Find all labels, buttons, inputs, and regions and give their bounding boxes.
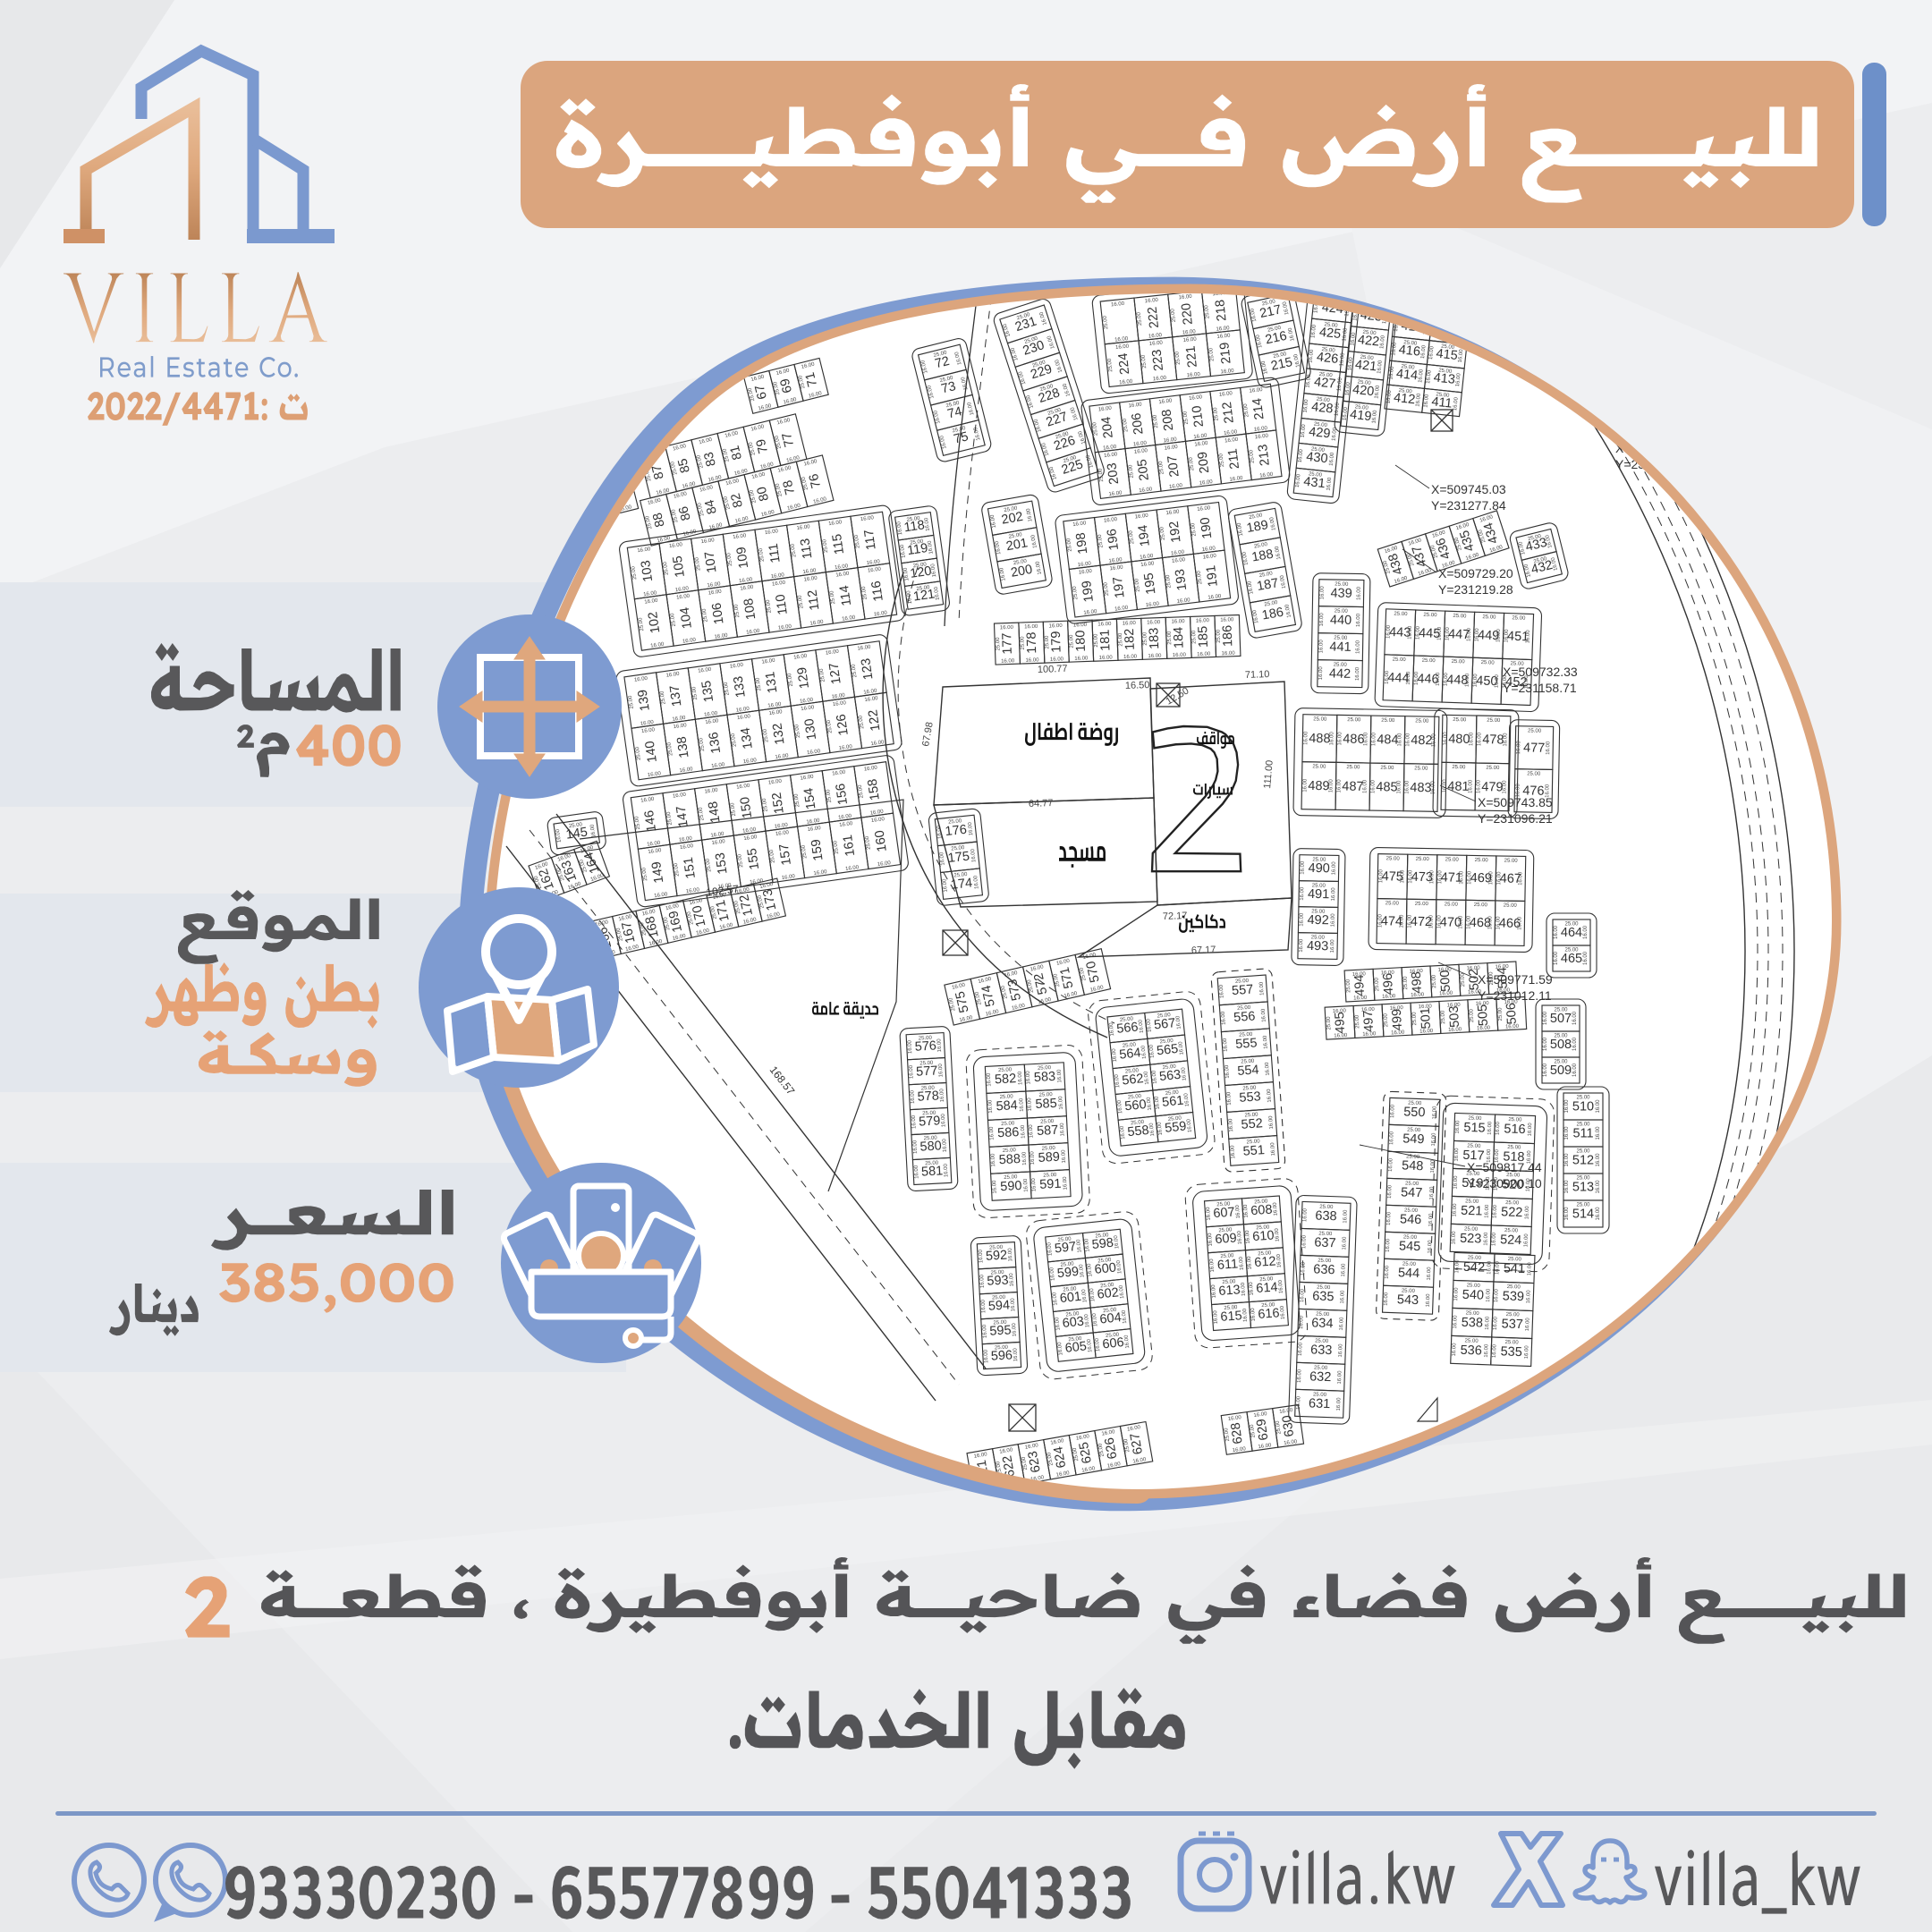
svg-text:16.00: 16.00 xyxy=(1021,1151,1028,1165)
svg-text:540: 540 xyxy=(1462,1288,1485,1303)
svg-text:16.00: 16.00 xyxy=(1370,779,1376,793)
svg-text:16.00: 16.00 xyxy=(1299,938,1304,953)
svg-text:550: 550 xyxy=(1403,1105,1426,1120)
svg-text:25.00: 25.00 xyxy=(1431,974,1437,988)
svg-text:483: 483 xyxy=(1410,781,1431,795)
svg-text:631: 631 xyxy=(1309,1396,1331,1411)
svg-text:25.00: 25.00 xyxy=(1311,909,1326,914)
svg-text:25.00: 25.00 xyxy=(1468,1255,1482,1261)
svg-text:16.00: 16.00 xyxy=(1206,1207,1212,1221)
svg-text:156: 156 xyxy=(834,783,851,806)
svg-text:123: 123 xyxy=(859,657,876,681)
svg-text:16.00: 16.00 xyxy=(1448,1027,1462,1033)
svg-text:25.00: 25.00 xyxy=(990,1270,1004,1276)
svg-text:16.00: 16.00 xyxy=(1371,732,1377,746)
svg-text:16.00: 16.00 xyxy=(1444,672,1450,686)
svg-text:135: 135 xyxy=(699,680,716,703)
svg-text:199: 199 xyxy=(1080,580,1097,603)
svg-text:16.00: 16.00 xyxy=(1057,1069,1063,1083)
svg-text:16.00: 16.00 xyxy=(1318,666,1324,681)
svg-text:16.00: 16.00 xyxy=(1300,1288,1306,1302)
svg-text:509: 509 xyxy=(1550,1063,1572,1078)
svg-text:25.00: 25.00 xyxy=(1468,1115,1482,1122)
svg-text:545: 545 xyxy=(1399,1239,1421,1254)
svg-text:16.00: 16.00 xyxy=(1355,640,1360,654)
svg-text:X=509729.20: X=509729.20 xyxy=(1438,566,1513,580)
svg-text:16.00: 16.00 xyxy=(1493,1316,1499,1330)
svg-text:16.00: 16.00 xyxy=(1518,871,1523,885)
svg-text:16.00: 16.00 xyxy=(1328,779,1334,793)
svg-text:16.00: 16.00 xyxy=(1387,1184,1394,1199)
svg-text:25.00: 25.00 xyxy=(993,1320,1007,1326)
svg-text:583: 583 xyxy=(1034,1070,1056,1085)
svg-text:25.00: 25.00 xyxy=(1191,630,1198,644)
svg-text:25.00: 25.00 xyxy=(1402,1288,1416,1294)
svg-text:549: 549 xyxy=(1402,1131,1425,1147)
svg-text:16.00: 16.00 xyxy=(992,1180,998,1194)
svg-text:16.00: 16.00 xyxy=(1525,630,1531,644)
svg-text:479: 479 xyxy=(1481,780,1503,794)
svg-text:25.00: 25.00 xyxy=(1474,902,1488,908)
svg-text:513: 513 xyxy=(1572,1181,1594,1195)
svg-text:16.00: 16.00 xyxy=(1303,731,1309,745)
svg-text:25.00: 25.00 xyxy=(1312,857,1326,862)
svg-text:591: 591 xyxy=(1039,1177,1062,1192)
svg-text:16.00: 16.00 xyxy=(1495,1260,1501,1275)
svg-text:16.00: 16.00 xyxy=(1469,732,1474,746)
svg-text:16.00: 16.00 xyxy=(1301,860,1306,875)
svg-text:25.00: 25.00 xyxy=(1042,1146,1056,1152)
svg-text:16.00: 16.00 xyxy=(1299,1315,1305,1329)
svg-text:551: 551 xyxy=(1242,1143,1265,1159)
svg-text:16.00: 16.00 xyxy=(1278,1279,1284,1293)
svg-text:16.00: 16.00 xyxy=(1477,732,1482,746)
svg-text:16.00: 16.00 xyxy=(1381,970,1395,977)
svg-text:16.00: 16.00 xyxy=(1196,618,1210,624)
svg-text:16.00: 16.00 xyxy=(1332,861,1337,876)
svg-text:16.00: 16.00 xyxy=(1408,869,1413,884)
svg-text:16.00: 16.00 xyxy=(1564,1099,1570,1114)
svg-text:132: 132 xyxy=(770,722,787,745)
svg-text:25.00: 25.00 xyxy=(1335,609,1349,614)
svg-text:25.00: 25.00 xyxy=(1216,629,1222,643)
svg-text:16.00: 16.00 xyxy=(1223,1038,1229,1052)
svg-text:16.00: 16.00 xyxy=(1525,1206,1531,1220)
svg-text:16.00: 16.00 xyxy=(1452,1343,1458,1357)
svg-text:464: 464 xyxy=(1561,926,1582,940)
svg-text:106: 106 xyxy=(709,602,726,625)
svg-text:25.00: 25.00 xyxy=(1220,1253,1234,1259)
svg-text:184: 184 xyxy=(1172,627,1187,649)
svg-text:633: 633 xyxy=(1310,1343,1333,1358)
svg-text:107: 107 xyxy=(702,550,719,573)
svg-text:16.00: 16.00 xyxy=(1583,925,1589,939)
svg-text:16.00: 16.00 xyxy=(1564,1207,1570,1221)
svg-text:16.00: 16.00 xyxy=(1336,779,1342,793)
svg-text:16.00: 16.00 xyxy=(1024,624,1038,631)
svg-text:547: 547 xyxy=(1401,1185,1423,1200)
svg-text:152: 152 xyxy=(770,792,787,815)
svg-text:25.00: 25.00 xyxy=(1242,1086,1257,1092)
svg-text:16.00: 16.00 xyxy=(1012,1322,1018,1336)
svg-text:16.00: 16.00 xyxy=(1415,625,1421,640)
svg-text:X=509745.03: X=509745.03 xyxy=(1431,482,1506,496)
svg-text:16.00: 16.00 xyxy=(1467,870,1472,885)
svg-text:210: 210 xyxy=(1190,404,1207,428)
svg-text:127: 127 xyxy=(827,662,844,685)
svg-text:16.00: 16.00 xyxy=(1483,1232,1489,1246)
svg-text:16.00: 16.00 xyxy=(1404,780,1410,794)
svg-text:16.00: 16.00 xyxy=(910,1089,916,1104)
svg-text:25.00: 25.00 xyxy=(1020,636,1026,650)
svg-text:25.00: 25.00 xyxy=(1311,935,1326,940)
svg-text:16.00: 16.00 xyxy=(982,1324,988,1338)
svg-text:16.00: 16.00 xyxy=(1407,914,1412,928)
svg-text:25.00: 25.00 xyxy=(1504,1340,1519,1346)
svg-text:537: 537 xyxy=(1501,1317,1523,1332)
svg-text:16.00: 16.00 xyxy=(1453,1287,1460,1301)
svg-text:557: 557 xyxy=(1232,983,1254,999)
svg-text:16.00: 16.00 xyxy=(1564,1126,1570,1140)
svg-text:219: 219 xyxy=(1217,342,1233,365)
svg-text:16.00: 16.00 xyxy=(1173,653,1187,659)
svg-text:25.00: 25.00 xyxy=(1576,1176,1590,1182)
svg-text:64.77: 64.77 xyxy=(1029,798,1054,809)
svg-text:16.00: 16.00 xyxy=(1280,1305,1286,1319)
svg-text:25.00: 25.00 xyxy=(995,1345,1009,1352)
svg-text:16.00: 16.00 xyxy=(1319,613,1325,627)
svg-text:543: 543 xyxy=(1397,1292,1419,1308)
svg-text:16.00: 16.00 xyxy=(1336,1397,1343,1411)
svg-text:16.00: 16.00 xyxy=(1487,1121,1494,1135)
svg-text:138: 138 xyxy=(674,735,691,758)
svg-text:25.00: 25.00 xyxy=(1528,728,1542,733)
svg-text:25.00: 25.00 xyxy=(1375,977,1381,991)
svg-text:16.00: 16.00 xyxy=(1249,1282,1255,1296)
svg-text:16.00: 16.00 xyxy=(1301,1261,1307,1275)
svg-text:25.00: 25.00 xyxy=(1069,634,1075,648)
svg-text:16.00: 16.00 xyxy=(1564,1153,1570,1167)
svg-text:25.00: 25.00 xyxy=(1486,766,1500,771)
svg-text:16.00: 16.00 xyxy=(1429,869,1435,884)
svg-text:16.00: 16.00 xyxy=(1400,869,1405,884)
svg-text:113: 113 xyxy=(798,538,815,560)
svg-text:16.00: 16.00 xyxy=(1226,1091,1233,1106)
svg-text:157: 157 xyxy=(777,843,794,866)
svg-text:16.00: 16.00 xyxy=(1496,916,1501,930)
svg-text:25.00: 25.00 xyxy=(1244,1112,1258,1118)
svg-text:16.00: 16.00 xyxy=(1495,674,1501,688)
svg-text:25.00: 25.00 xyxy=(1469,1008,1475,1022)
svg-text:16.00: 16.00 xyxy=(1410,969,1424,975)
svg-text:25.00: 25.00 xyxy=(1403,1234,1418,1241)
svg-text:488: 488 xyxy=(1309,732,1330,746)
svg-text:25.00: 25.00 xyxy=(1554,1008,1568,1013)
svg-text:16.00: 16.00 xyxy=(1405,733,1411,747)
svg-text:16.00: 16.00 xyxy=(1496,1121,1502,1135)
svg-text:25.00: 25.00 xyxy=(1317,1285,1331,1292)
svg-text:16.00: 16.00 xyxy=(1399,914,1404,928)
svg-text:16.00: 16.00 xyxy=(911,1114,918,1129)
svg-text:536: 536 xyxy=(1460,1343,1482,1359)
svg-text:114: 114 xyxy=(837,584,854,606)
svg-text:16.00: 16.00 xyxy=(1224,1064,1231,1079)
svg-text:25.00: 25.00 xyxy=(921,1086,936,1092)
svg-text:16.00: 16.00 xyxy=(1300,886,1305,901)
svg-text:539: 539 xyxy=(1502,1289,1524,1304)
svg-text:16.00: 16.00 xyxy=(1454,1148,1461,1162)
svg-text:16.00: 16.00 xyxy=(1273,1201,1279,1216)
svg-text:16.00: 16.00 xyxy=(1447,1003,1462,1009)
svg-text:104: 104 xyxy=(678,606,695,630)
svg-text:16.00: 16.00 xyxy=(1465,673,1471,687)
svg-text:16.00: 16.00 xyxy=(1343,1209,1349,1224)
svg-text:25.00: 25.00 xyxy=(1393,657,1407,664)
svg-text:25.00: 25.00 xyxy=(1482,614,1496,621)
svg-text:212: 212 xyxy=(1220,401,1237,424)
svg-text:25.00: 25.00 xyxy=(1504,903,1518,909)
svg-text:193: 193 xyxy=(1173,568,1190,591)
svg-text:25.00: 25.00 xyxy=(1334,663,1348,668)
svg-text:636: 636 xyxy=(1313,1262,1335,1277)
svg-text:117: 117 xyxy=(862,529,879,551)
svg-text:16.00: 16.00 xyxy=(1583,951,1589,965)
svg-text:X=509771.59: X=509771.59 xyxy=(1478,972,1553,987)
svg-text:16.00: 16.00 xyxy=(1378,869,1384,883)
svg-text:542: 542 xyxy=(1463,1260,1486,1275)
svg-text:16.00: 16.00 xyxy=(1339,1317,1345,1331)
svg-text:25.00: 25.00 xyxy=(1313,716,1327,722)
svg-text:16.00: 16.00 xyxy=(1270,1142,1276,1157)
svg-text:25.00: 25.00 xyxy=(924,1136,938,1142)
svg-text:16.00: 16.00 xyxy=(1263,1035,1269,1049)
svg-text:16.00: 16.00 xyxy=(1432,1106,1438,1120)
svg-text:25.00: 25.00 xyxy=(1422,658,1436,665)
svg-text:211: 211 xyxy=(1225,447,1242,470)
svg-text:523: 523 xyxy=(1460,1232,1482,1247)
svg-text:25.00: 25.00 xyxy=(1416,857,1430,862)
svg-text:16.00: 16.00 xyxy=(1148,654,1162,660)
svg-text:16.00: 16.00 xyxy=(1334,1033,1348,1039)
svg-text:16.00: 16.00 xyxy=(1030,1150,1036,1165)
svg-text:25.00: 25.00 xyxy=(919,1061,934,1067)
svg-text:16.00: 16.00 xyxy=(1428,1213,1435,1227)
svg-text:16.00: 16.00 xyxy=(1025,657,1039,664)
svg-text:16.00: 16.00 xyxy=(1554,951,1559,965)
svg-text:16.00: 16.00 xyxy=(1239,1256,1245,1270)
svg-text:16.00: 16.00 xyxy=(1414,671,1420,685)
svg-text:590: 590 xyxy=(1000,1179,1022,1194)
svg-text:16.00: 16.00 xyxy=(1000,625,1014,631)
svg-text:16.00: 16.00 xyxy=(1213,1309,1219,1324)
svg-text:480: 480 xyxy=(1448,732,1470,746)
svg-text:16.00: 16.00 xyxy=(1356,613,1361,627)
svg-text:16.00: 16.00 xyxy=(1027,1097,1033,1112)
svg-text:16.00: 16.00 xyxy=(1337,732,1343,746)
svg-text:Y=231012.11: Y=231012.11 xyxy=(1478,988,1552,1003)
svg-text:635: 635 xyxy=(1312,1289,1335,1304)
svg-text:16.00: 16.00 xyxy=(1517,916,1522,930)
svg-text:25.00: 25.00 xyxy=(1402,1261,1417,1267)
svg-text:544: 544 xyxy=(1398,1266,1420,1281)
svg-text:159: 159 xyxy=(809,838,826,861)
svg-text:16.00: 16.00 xyxy=(1426,1293,1432,1308)
svg-text:16.00: 16.00 xyxy=(1074,656,1089,662)
svg-text:25.00: 25.00 xyxy=(1554,1060,1568,1065)
svg-text:25.00: 25.00 xyxy=(1313,1392,1327,1398)
svg-text:16.00: 16.00 xyxy=(1352,971,1367,978)
svg-text:16.00: 16.00 xyxy=(1221,1011,1227,1025)
svg-text:16.00: 16.00 xyxy=(1049,623,1063,630)
svg-text:25.00: 25.00 xyxy=(996,637,1002,651)
svg-text:25.00: 25.00 xyxy=(989,1245,1004,1251)
svg-text:514: 514 xyxy=(1572,1207,1594,1222)
svg-text:16.00: 16.00 xyxy=(1436,626,1443,640)
svg-text:16.00: 16.00 xyxy=(1330,939,1335,953)
svg-text:16.00: 16.00 xyxy=(1247,1256,1253,1270)
svg-text:16.00: 16.00 xyxy=(1341,1263,1347,1277)
svg-text:16.00: 16.00 xyxy=(1516,741,1521,755)
svg-text:16.00: 16.00 xyxy=(1267,1089,1273,1103)
svg-text:177: 177 xyxy=(1000,632,1015,655)
svg-text:25.00: 25.00 xyxy=(1381,718,1395,724)
svg-text:25.00: 25.00 xyxy=(1508,1117,1522,1123)
svg-text:180: 180 xyxy=(1073,630,1089,652)
svg-text:16.00: 16.00 xyxy=(1572,1011,1578,1025)
svg-text:16.00: 16.00 xyxy=(1382,994,1396,1000)
svg-text:25.00: 25.00 xyxy=(1043,1173,1057,1179)
svg-text:126: 126 xyxy=(835,713,852,736)
svg-text:16.00: 16.00 xyxy=(1390,1104,1396,1118)
svg-text:X=509743.85: X=509743.85 xyxy=(1478,795,1553,809)
svg-text:16.00: 16.00 xyxy=(1397,733,1402,747)
svg-text:195: 195 xyxy=(1142,572,1159,596)
svg-text:25.00: 25.00 xyxy=(1467,1143,1481,1149)
svg-text:16.00: 16.00 xyxy=(1329,732,1335,746)
svg-text:16.00: 16.00 xyxy=(1250,1307,1257,1321)
svg-text:16.00: 16.00 xyxy=(1301,1234,1308,1249)
svg-text:25.00: 25.00 xyxy=(1001,1121,1015,1127)
svg-text:129: 129 xyxy=(795,666,812,690)
svg-text:16.00: 16.00 xyxy=(1050,657,1064,663)
svg-text:25.00: 25.00 xyxy=(1576,1149,1590,1155)
svg-text:25.00: 25.00 xyxy=(1487,718,1501,724)
svg-text:16.00: 16.00 xyxy=(1013,1347,1019,1361)
svg-text:16.00: 16.00 xyxy=(1485,1204,1491,1218)
svg-text:511: 511 xyxy=(1572,1127,1593,1141)
svg-text:16.00: 16.00 xyxy=(1505,1024,1520,1030)
svg-text:503: 503 xyxy=(1447,1005,1462,1028)
svg-text:584: 584 xyxy=(996,1098,1018,1114)
svg-text:16.00: 16.00 xyxy=(1437,870,1443,885)
svg-text:16.00: 16.00 xyxy=(1333,1008,1347,1014)
svg-text:16.00: 16.00 xyxy=(1546,741,1551,755)
svg-text:16.00: 16.00 xyxy=(1391,1030,1405,1037)
svg-text:25.00: 25.00 xyxy=(1407,1128,1421,1134)
svg-text:25.00: 25.00 xyxy=(1415,718,1429,724)
svg-text:16.00: 16.00 xyxy=(1377,913,1383,928)
svg-text:16.00: 16.00 xyxy=(1487,1260,1493,1275)
svg-text:67.17: 67.17 xyxy=(1191,945,1216,956)
svg-text:154: 154 xyxy=(801,787,818,810)
svg-text:16.00: 16.00 xyxy=(1596,1180,1601,1194)
svg-text:16.00: 16.00 xyxy=(1331,913,1336,928)
svg-text:16.00: 16.00 xyxy=(990,1153,996,1167)
svg-text:16.00: 16.00 xyxy=(1411,992,1425,998)
svg-text:16.00: 16.00 xyxy=(1543,1037,1548,1051)
svg-text:161: 161 xyxy=(841,834,858,857)
svg-text:25.00: 25.00 xyxy=(1385,901,1400,906)
svg-text:16.00: 16.00 xyxy=(1572,1037,1578,1051)
svg-text:553: 553 xyxy=(1239,1089,1261,1106)
svg-text:25.00: 25.00 xyxy=(1000,1094,1014,1100)
svg-text:16.00: 16.00 xyxy=(1063,1176,1069,1191)
svg-text:25.00: 25.00 xyxy=(1576,1096,1590,1101)
svg-text:25.00: 25.00 xyxy=(1142,631,1148,646)
svg-text:16.00: 16.00 xyxy=(1524,1345,1530,1360)
svg-text:207: 207 xyxy=(1165,454,1182,478)
svg-text:16.00: 16.00 xyxy=(1487,916,1493,930)
svg-text:103: 103 xyxy=(639,559,656,582)
svg-text:25.00: 25.00 xyxy=(1464,1338,1479,1344)
svg-text:16.00: 16.00 xyxy=(1388,1157,1394,1172)
svg-text:25.00: 25.00 xyxy=(1504,859,1519,864)
svg-text:25.00: 25.00 xyxy=(1506,1312,1521,1318)
svg-text:X=509732.33: X=509732.33 xyxy=(1503,665,1578,679)
svg-text:16.00: 16.00 xyxy=(1209,1258,1216,1273)
svg-text:16.00: 16.00 xyxy=(1219,984,1225,998)
svg-text:111: 111 xyxy=(767,542,784,563)
svg-text:16.00: 16.00 xyxy=(1494,1288,1500,1302)
svg-text:16.00: 16.00 xyxy=(1361,1007,1376,1013)
svg-text:16.00: 16.00 xyxy=(1320,586,1326,600)
svg-text:16.00: 16.00 xyxy=(1476,779,1481,793)
svg-text:151: 151 xyxy=(682,856,699,879)
svg-text:440: 440 xyxy=(1330,613,1352,627)
svg-text:16.00: 16.00 xyxy=(1009,1273,1015,1287)
svg-text:585: 585 xyxy=(1035,1097,1057,1112)
svg-text:155: 155 xyxy=(745,847,762,870)
svg-text:16.00: 16.00 xyxy=(1486,1288,1492,1302)
svg-text:25.00: 25.00 xyxy=(1038,1092,1053,1098)
svg-text:16.00: 16.00 xyxy=(1171,619,1185,625)
svg-text:16.00: 16.00 xyxy=(1390,1005,1404,1012)
svg-text:508: 508 xyxy=(1550,1038,1572,1052)
svg-text:136: 136 xyxy=(707,731,724,754)
svg-text:130: 130 xyxy=(802,717,819,741)
svg-text:25.00: 25.00 xyxy=(992,1295,1006,1301)
svg-text:16.00: 16.00 xyxy=(1331,887,1336,902)
svg-text:16.00: 16.00 xyxy=(1363,732,1368,746)
svg-text:16.00: 16.00 xyxy=(1496,628,1502,642)
svg-text:25.00: 25.00 xyxy=(1527,771,1541,776)
svg-text:25.00: 25.00 xyxy=(1467,1283,1481,1289)
svg-text:Y=231158.71: Y=231158.71 xyxy=(1503,681,1577,695)
svg-text:25.00: 25.00 xyxy=(1094,633,1100,648)
svg-text:25.00: 25.00 xyxy=(1224,1305,1238,1311)
svg-text:205: 205 xyxy=(1135,458,1152,481)
svg-text:16.00: 16.00 xyxy=(1596,1126,1601,1140)
svg-text:16.00: 16.00 xyxy=(1362,779,1368,793)
svg-text:586: 586 xyxy=(997,1125,1020,1140)
svg-text:16.00: 16.00 xyxy=(1099,655,1114,661)
svg-text:484: 484 xyxy=(1377,733,1398,747)
svg-text:25.00: 25.00 xyxy=(1346,765,1360,770)
svg-text:25.00: 25.00 xyxy=(922,1111,936,1117)
svg-text:16.00: 16.00 xyxy=(1300,912,1305,927)
svg-text:191: 191 xyxy=(1204,564,1221,588)
svg-text:16.00: 16.00 xyxy=(1001,658,1015,665)
